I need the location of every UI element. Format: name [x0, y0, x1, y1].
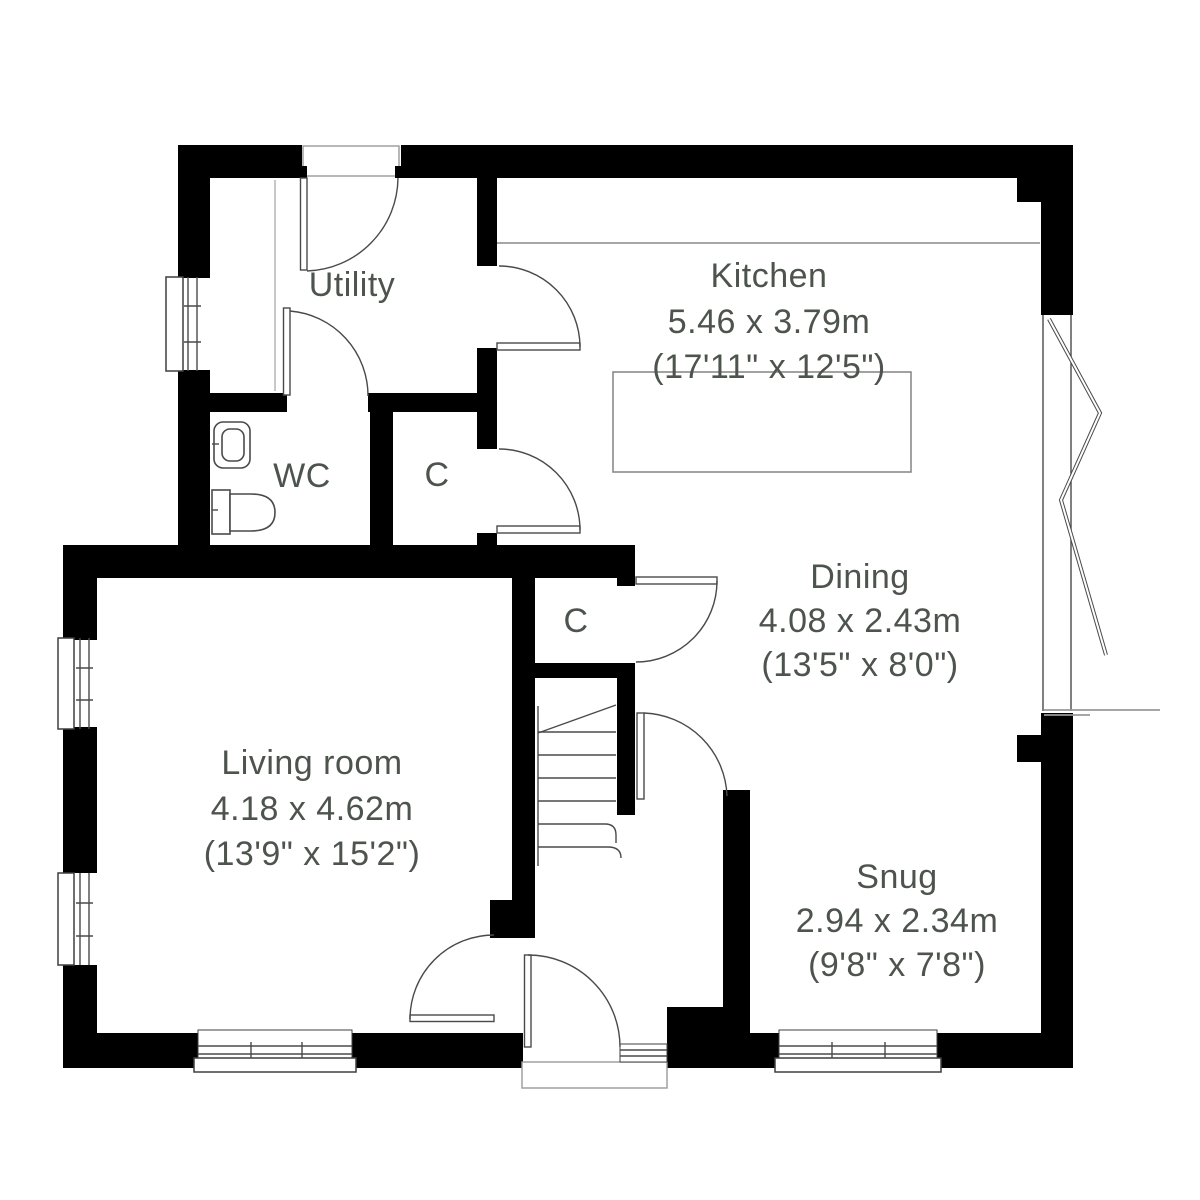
room-size-snug-imperial: (9'8" x 7'8") [808, 946, 986, 984]
room-label-kitchen-cupboard: C [424, 456, 449, 494]
room-label-kitchen: Kitchen [711, 257, 828, 295]
window-living-room-lower [58, 873, 93, 965]
door-living-room [410, 935, 494, 1022]
bifold-door [1043, 315, 1160, 715]
door-front [522, 955, 667, 1088]
floor-plan-page: Utility Kitchen 5.46 x 3.79m (17'11" x 1… [0, 0, 1200, 1200]
room-size-snug-metric: 2.94 x 2.34m [796, 902, 999, 940]
room-size-kitchen-imperial: (17'11" x 12'5") [652, 348, 886, 386]
floor-plan-svg: Utility Kitchen 5.46 x 3.79m (17'11" x 1… [0, 0, 1200, 1200]
wc-toilet [212, 490, 275, 534]
room-size-living-room-imperial: (13'9" x 15'2") [204, 835, 421, 873]
window-utility [166, 277, 201, 371]
room-label-living-room: Living room [221, 744, 402, 782]
door-wc [284, 308, 369, 396]
door-hall-cupboard [636, 577, 717, 662]
room-size-living-room-metric: 4.18 x 4.62m [211, 790, 414, 828]
door-kitchen-cupboard [497, 449, 580, 533]
room-label-snug: Snug [856, 858, 937, 896]
room-label-hall-cupboard: C [563, 602, 588, 640]
window-living-room-bottom [194, 1030, 356, 1072]
room-label-utility: Utility [309, 266, 396, 304]
room-label-wc: WC [273, 457, 331, 495]
door-utility-rear [299, 146, 403, 271]
room-size-dining-metric: 4.08 x 2.43m [759, 602, 962, 640]
kitchen-island [613, 372, 911, 472]
wc-sink [212, 422, 250, 468]
room-size-kitchen-metric: 5.46 x 3.79m [668, 303, 871, 341]
window-snug-bottom [775, 1030, 941, 1072]
wc-fixtures [212, 422, 275, 534]
window-living-room-upper [58, 638, 93, 729]
room-labels: Utility Kitchen 5.46 x 3.79m (17'11" x 1… [204, 257, 999, 984]
room-label-dining: Dining [810, 558, 909, 596]
door-hall-dining [637, 713, 727, 799]
stairs [538, 705, 621, 866]
room-size-dining-imperial: (13'5" x 8'0") [761, 646, 958, 684]
door-utility-kitchen [497, 266, 580, 350]
